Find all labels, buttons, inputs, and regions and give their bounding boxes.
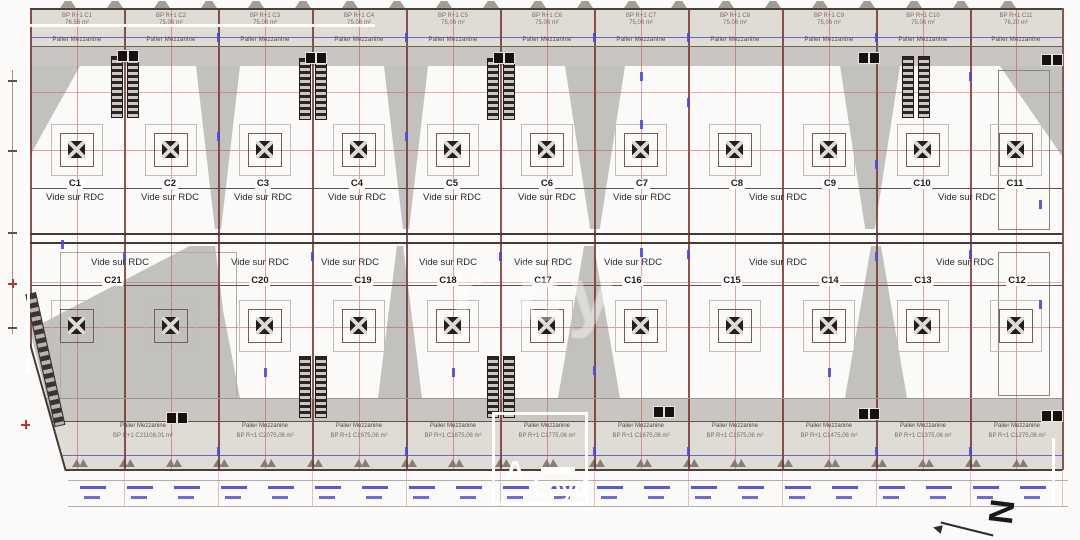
unit-id-label: C20 bbox=[249, 276, 270, 286]
stair-symbol bbox=[902, 56, 914, 118]
palier-label: Palier Mezzanine bbox=[313, 423, 405, 430]
palier-label: Palier Mezzanine bbox=[783, 37, 875, 44]
dimension-value-mark bbox=[131, 496, 147, 499]
unit-id-label: C4 bbox=[349, 179, 365, 189]
dimension-mark bbox=[969, 72, 972, 81]
grid-line-vertical bbox=[688, 8, 690, 470]
mezzanine-cell: BP R+1 C475,06 m²Palier Mezzanine bbox=[313, 13, 405, 44]
dimension-value-mark bbox=[80, 486, 106, 489]
hatch-mark bbox=[295, 1, 311, 8]
dimension-mark bbox=[61, 240, 64, 249]
dimension-mark bbox=[1039, 300, 1042, 309]
palier-label: Palier Mezzanine bbox=[407, 423, 499, 430]
dimension-value-mark bbox=[178, 496, 194, 499]
dimension-tick bbox=[8, 327, 17, 329]
north-arrow: N bbox=[988, 492, 1013, 531]
vide-sur-rdc-label: Vide sur RDC bbox=[613, 193, 671, 203]
mezzanine-cell: BP R+1 C375,06 m²Palier Mezzanine bbox=[219, 13, 311, 44]
dimension-mark bbox=[687, 447, 690, 456]
hatch-mark bbox=[436, 1, 452, 8]
grid-line-vertical bbox=[265, 8, 266, 470]
cell-area: 108,01 m² bbox=[146, 433, 173, 439]
column-pair-symbol bbox=[493, 52, 504, 64]
cell-area: 75,06 m² bbox=[501, 20, 593, 27]
mezzanine-cell: Palier MezzanineBP R+1 C21108,01 m² bbox=[97, 423, 189, 439]
column-pair-symbol bbox=[504, 52, 515, 64]
palier-label: Palier Mezzanine bbox=[689, 37, 781, 44]
dimension-value-mark bbox=[930, 496, 946, 499]
dimension-mark bbox=[687, 250, 690, 259]
grid-line-vertical bbox=[1062, 8, 1064, 470]
dimension-value-mark bbox=[738, 486, 764, 489]
dimension-value-mark bbox=[832, 486, 858, 489]
dimension-value-mark bbox=[601, 496, 617, 499]
grid-line-vertical bbox=[218, 8, 220, 470]
dimension-mark bbox=[640, 120, 643, 129]
mezzanine-cell: Palier MezzanineBP R+1 C1975,06 m² bbox=[313, 423, 405, 439]
grid-line-horizontal bbox=[30, 242, 1062, 244]
logo-watermark: A Loyd bbox=[492, 412, 588, 505]
mezzanine-cell: BP R+1 C176,56 m²Palier Mezzanine bbox=[31, 13, 123, 44]
column-symbol bbox=[350, 141, 367, 158]
dimension-value-mark bbox=[315, 486, 341, 489]
palier-label: Palier Mezzanine bbox=[97, 423, 189, 430]
hatch-mark bbox=[154, 1, 170, 8]
cell-area: 76,20 m² bbox=[970, 20, 1062, 27]
mezzanine-cell: Palier MezzanineBP R+1 C1875,06 m² bbox=[407, 423, 499, 439]
cell-area: 75,06 m² bbox=[834, 433, 858, 439]
unit-id-label: C13 bbox=[912, 276, 933, 286]
mezzanine-cell: BP R+1 C975,06 m²Palier Mezzanine bbox=[783, 13, 875, 44]
mezzanine-cell: BP R+1 C1075,06 m²Palier Mezzanine bbox=[877, 13, 969, 44]
stair-symbol bbox=[503, 356, 515, 418]
cell-ref: BP R+1 C12 bbox=[988, 433, 1021, 439]
grid-line-vertical bbox=[594, 8, 596, 470]
dimension-mark bbox=[405, 447, 408, 456]
column-symbol bbox=[1007, 317, 1024, 334]
unit-id-label: C16 bbox=[622, 276, 643, 286]
hatch-mark bbox=[342, 1, 358, 8]
grid-line-vertical bbox=[782, 8, 784, 470]
unit-id-label: C1 bbox=[67, 179, 83, 189]
dimension-tick bbox=[8, 150, 17, 152]
column-symbol bbox=[632, 141, 649, 158]
grid-line-vertical bbox=[77, 8, 78, 470]
vide-sur-rdc-label: Vide sur RDC bbox=[749, 193, 807, 203]
unit-id-label: C19 bbox=[352, 276, 373, 286]
stair-symbol bbox=[299, 58, 311, 120]
mezzanine-cell: BP R+1 C575,06 m²Palier Mezzanine bbox=[407, 13, 499, 44]
cell-area: 75,06 m² bbox=[458, 433, 482, 439]
column-symbol bbox=[162, 317, 179, 334]
unit-id-label: C15 bbox=[721, 276, 742, 286]
hatch-mark bbox=[812, 1, 828, 8]
dimension-value-mark bbox=[836, 496, 852, 499]
palier-label: Palier Mezzanine bbox=[689, 423, 781, 430]
dimension-value-mark bbox=[785, 486, 811, 489]
palier-label: Palier Mezzanine bbox=[595, 37, 687, 44]
dimension-mark bbox=[969, 447, 972, 456]
palier-label: Palier Mezzanine bbox=[783, 423, 875, 430]
dimension-tick bbox=[782, 470, 783, 506]
dimension-value-mark bbox=[742, 496, 758, 499]
vide-sur-rdc-label: Vide sur RDC bbox=[234, 193, 292, 203]
unit-id-label: C9 bbox=[822, 179, 838, 189]
dimension-mark bbox=[405, 132, 408, 141]
dimension-tick bbox=[8, 232, 17, 234]
dimension-value-mark bbox=[413, 496, 429, 499]
unit-id-label: C5 bbox=[444, 179, 460, 189]
dimension-mark bbox=[593, 366, 596, 375]
dimension-tick bbox=[8, 80, 17, 82]
column-pair-symbol bbox=[117, 50, 128, 62]
vide-sur-rdc-label: Vide sur RDC bbox=[423, 193, 481, 203]
cell-ref: BP R+1 C14 bbox=[800, 433, 833, 439]
north-label: N bbox=[979, 497, 1021, 526]
dimension-mark bbox=[311, 252, 314, 261]
grid-line-vertical bbox=[876, 8, 878, 470]
palier-label: Palier Mezzanine bbox=[31, 37, 123, 44]
mezzanine-cell: Palier MezzanineBP R+1 C1275,06 m² bbox=[971, 423, 1063, 439]
dimension-mark bbox=[593, 447, 596, 456]
column-pair-symbol bbox=[1052, 54, 1063, 66]
dimension-mark bbox=[640, 72, 643, 81]
dimension-mark bbox=[687, 98, 690, 107]
dimension-mark bbox=[217, 447, 220, 456]
hatch-mark bbox=[389, 1, 405, 8]
dimension-tick bbox=[876, 470, 877, 506]
stair-symbol bbox=[127, 56, 139, 118]
dimension-mark bbox=[1039, 200, 1042, 209]
dimension-value-mark bbox=[460, 496, 476, 499]
cell-area: 75,06 m² bbox=[783, 20, 875, 27]
hatch-mark bbox=[953, 1, 969, 8]
grid-line-vertical bbox=[312, 8, 314, 470]
palier-label: Palier Mezzanine bbox=[877, 423, 969, 430]
grid-line-vertical bbox=[735, 8, 736, 470]
palier-label: Palier Mezzanine bbox=[501, 37, 593, 44]
hatch-mark bbox=[671, 1, 687, 8]
dimension-value-mark bbox=[221, 486, 247, 489]
cell-ref: BP R+1 C20 bbox=[236, 433, 269, 439]
palier-label: Palier Mezzanine bbox=[877, 37, 969, 44]
column-symbol bbox=[256, 317, 273, 334]
grid-line-vertical bbox=[829, 8, 830, 470]
column-pair-symbol bbox=[869, 52, 880, 64]
mezzanine-cell: Palier MezzanineBP R+1 C1375,06 m² bbox=[877, 423, 969, 439]
vide-sur-rdc-label: Vide sur RDC bbox=[328, 193, 386, 203]
vide-sur-rdc-label: Vide sur RDC bbox=[321, 258, 379, 268]
palier-label: Palier Mezzanine bbox=[313, 37, 405, 44]
grid-line-horizontal bbox=[30, 233, 1062, 235]
grid-line-vertical bbox=[359, 8, 360, 470]
stair-symbol bbox=[487, 356, 499, 418]
hatch-mark bbox=[718, 1, 734, 8]
column-symbol bbox=[1007, 141, 1024, 158]
column-symbol bbox=[726, 317, 743, 334]
cell-area: 75,06 m² bbox=[928, 433, 952, 439]
column-pair-symbol bbox=[869, 408, 880, 420]
dimension-value-mark bbox=[84, 496, 100, 499]
unit-id-label: C7 bbox=[634, 179, 650, 189]
dimension-value-mark bbox=[926, 486, 952, 489]
cell-area: 75,06 m² bbox=[364, 433, 388, 439]
dimension-tick bbox=[594, 470, 595, 506]
mezzanine-cell: Palier MezzanineBP R+1 C1575,06 m² bbox=[689, 423, 781, 439]
vide-sur-rdc-label: Vide sur RDC bbox=[46, 193, 104, 203]
dimension-value-mark bbox=[883, 496, 899, 499]
column-pair-symbol bbox=[664, 406, 675, 418]
grid-line-horizontal bbox=[30, 398, 1062, 399]
dimension-value-mark bbox=[319, 496, 335, 499]
cell-area: 75,06 m² bbox=[595, 20, 687, 27]
vide-sur-rdc-label: Vide sur RDC bbox=[231, 258, 289, 268]
mezzanine-cell: Palier MezzanineBP R+1 C2075,06 m² bbox=[219, 423, 311, 439]
mezzanine-cell: BP R+1 C1176,20 m²Palier Mezzanine bbox=[970, 13, 1062, 44]
column-symbol bbox=[68, 317, 85, 334]
mezzanine-cell: Palier MezzanineBP R+1 C1675,06 m² bbox=[595, 423, 687, 439]
dimension-value-mark bbox=[789, 496, 805, 499]
column-pair-symbol bbox=[316, 52, 327, 64]
dimension-value-mark bbox=[695, 496, 711, 499]
mezzanine-cell: BP R+1 C275,06 m²Palier Mezzanine bbox=[125, 13, 217, 44]
column-symbol bbox=[632, 317, 649, 334]
grid-line-horizontal bbox=[30, 46, 1062, 47]
dimension-value-mark bbox=[691, 486, 717, 489]
dimension-value-mark bbox=[272, 496, 288, 499]
hatch-mark bbox=[60, 1, 76, 8]
cell-area: 75,06 m² bbox=[1022, 433, 1046, 439]
column-pair-symbol bbox=[858, 408, 869, 420]
hatch-mark bbox=[248, 1, 264, 8]
dimension-value-mark bbox=[362, 486, 388, 489]
grid-line-vertical bbox=[500, 8, 502, 470]
cell-ref: BP R+1 C15 bbox=[706, 433, 739, 439]
dimension-line bbox=[68, 506, 1068, 507]
dimension-mark bbox=[452, 368, 455, 377]
unit-id-label: C10 bbox=[911, 179, 932, 189]
dimension-mark bbox=[875, 252, 878, 261]
dimension-mark bbox=[875, 160, 878, 169]
column-symbol bbox=[68, 141, 85, 158]
hatch-mark bbox=[577, 1, 593, 8]
hatch-mark bbox=[906, 1, 922, 8]
crosshair-mark bbox=[12, 279, 14, 288]
dimension-tick bbox=[124, 470, 125, 506]
logo-name: Loyd bbox=[533, 475, 588, 502]
cell-area: 75,06 m² bbox=[689, 20, 781, 27]
crop-mark-horizontal bbox=[27, 24, 375, 27]
dimension-value-mark bbox=[644, 486, 670, 489]
hatch-mark bbox=[107, 1, 123, 8]
stair-symbol bbox=[918, 56, 930, 118]
unit-id-label: C11 bbox=[1005, 179, 1026, 189]
palier-label: Palier Mezzanine bbox=[595, 423, 687, 430]
middle-void-band bbox=[30, 234, 1062, 242]
hatch-mark bbox=[201, 1, 217, 8]
dimension-value-mark bbox=[127, 486, 153, 489]
palier-label: Palier Mezzanine bbox=[971, 423, 1063, 430]
hatch-mark bbox=[765, 1, 781, 8]
palier-label: Palier Mezzanine bbox=[125, 37, 217, 44]
cell-area: 75,06 m² bbox=[407, 20, 499, 27]
column-pair-symbol bbox=[1041, 410, 1052, 422]
dimension-tick bbox=[1062, 470, 1063, 506]
dimension-value-mark bbox=[1024, 496, 1040, 499]
unit-id-label: C3 bbox=[255, 179, 271, 189]
stair-symbol bbox=[503, 58, 515, 120]
dimension-value-mark bbox=[648, 496, 664, 499]
column-symbol bbox=[914, 317, 931, 334]
mezzanine-cell: BP R+1 C875,06 m²Palier Mezzanine bbox=[689, 13, 781, 44]
dimension-tick bbox=[688, 470, 689, 506]
dimension-mark bbox=[875, 447, 878, 456]
stair-symbol bbox=[315, 58, 327, 120]
grid-line-vertical bbox=[406, 8, 408, 470]
unit-id-label: C21 bbox=[102, 276, 123, 286]
column-symbol bbox=[820, 317, 837, 334]
palier-label: Palier Mezzanine bbox=[219, 423, 311, 430]
hatch-mark bbox=[1000, 1, 1016, 8]
mezzanine-cell: BP R+1 C675,06 m²Palier Mezzanine bbox=[501, 13, 593, 44]
dimension-value-mark bbox=[366, 496, 382, 499]
logo-bar bbox=[541, 467, 575, 473]
palier-label: Palier Mezzanine bbox=[407, 37, 499, 44]
dimension-value-mark bbox=[456, 486, 482, 489]
grid-line-vertical bbox=[1016, 8, 1017, 470]
column-pair-symbol bbox=[653, 406, 664, 418]
hatch-mark bbox=[530, 1, 546, 8]
dimension-value-mark bbox=[409, 486, 435, 489]
grid-line-vertical bbox=[124, 8, 126, 470]
grid-line-horizontal bbox=[30, 8, 1062, 10]
cell-area: 75,06 m² bbox=[646, 433, 670, 439]
column-symbol bbox=[726, 141, 743, 158]
dimension-mark bbox=[828, 368, 831, 377]
hatch-mark bbox=[624, 1, 640, 8]
cell-area: 75,06 m² bbox=[877, 20, 969, 27]
crop-mark-vertical bbox=[1052, 438, 1055, 505]
hatch-mark bbox=[859, 1, 875, 8]
stair-symbol bbox=[299, 356, 311, 418]
grid-line-vertical bbox=[171, 8, 172, 470]
column-symbol bbox=[162, 141, 179, 158]
unit-id-label: C14 bbox=[819, 276, 840, 286]
column-pair-symbol bbox=[858, 52, 869, 64]
column-symbol bbox=[538, 141, 555, 158]
dimension-mark bbox=[217, 132, 220, 141]
column-pair-symbol bbox=[128, 50, 139, 62]
palier-label: Palier Mezzanine bbox=[219, 37, 311, 44]
unit-id-label: C6 bbox=[539, 179, 555, 189]
floorplan-screenshot: BP R+1 C176,56 m²Palier Mezzanine BP R+1… bbox=[0, 0, 1080, 540]
cell-ref: BP R+1 C19 bbox=[330, 433, 363, 439]
cell-ref: BP R+1 C21 bbox=[113, 433, 146, 439]
column-symbol bbox=[256, 141, 273, 158]
dimension-value-mark bbox=[973, 486, 999, 489]
vide-sur-rdc-label: Vide sur RDC bbox=[938, 193, 996, 203]
stair-symbol bbox=[487, 58, 499, 120]
logo-letter: A bbox=[505, 455, 525, 487]
column-symbol bbox=[444, 141, 461, 158]
cell-ref: BP R+1 C13 bbox=[894, 433, 927, 439]
cell-ref: BP R+1 C18 bbox=[424, 433, 457, 439]
palier-label: Palier Mezzanine bbox=[970, 37, 1062, 44]
dimension-mark bbox=[640, 248, 643, 257]
dimension-value-mark bbox=[268, 486, 294, 489]
cell-ref: BP R+1 C16 bbox=[612, 433, 645, 439]
column-pair-symbol bbox=[1041, 54, 1052, 66]
hatch-mark bbox=[483, 1, 499, 8]
dimension-tick bbox=[970, 470, 971, 506]
vide-sur-rdc-label: Vide sur RDC bbox=[91, 258, 149, 268]
dimension-value-mark bbox=[174, 486, 200, 489]
crop-mark-vertical bbox=[27, 24, 30, 373]
dimension-value-mark bbox=[1020, 486, 1046, 489]
dimension-mark bbox=[264, 368, 267, 377]
column-symbol bbox=[914, 141, 931, 158]
vide-sur-rdc-label: Vide sur RDC bbox=[749, 258, 807, 268]
crosshair-mark bbox=[25, 420, 27, 429]
dimension-value-mark bbox=[879, 486, 905, 489]
column-pair-symbol bbox=[305, 52, 316, 64]
column-symbol bbox=[820, 141, 837, 158]
vide-sur-rdc-label: Vide sur RDC bbox=[936, 258, 994, 268]
column-symbol bbox=[350, 317, 367, 334]
mezzanine-cell: Palier MezzanineBP R+1 C1475,06 m² bbox=[783, 423, 875, 439]
grid-line-vertical bbox=[547, 8, 548, 470]
cell-area: 75,06 m² bbox=[740, 433, 764, 439]
watermark-center: r by bbox=[450, 244, 622, 344]
unit-id-label: C8 bbox=[729, 179, 745, 189]
vide-sur-rdc-label: Vide sur RDC bbox=[518, 193, 576, 203]
column-pair-symbol bbox=[1052, 410, 1063, 422]
dimension-value-mark bbox=[597, 486, 623, 489]
dimension-tick bbox=[406, 470, 407, 506]
grid-line-vertical bbox=[453, 8, 454, 470]
dimension-tick bbox=[218, 470, 219, 506]
cell-area: 75,06 m² bbox=[270, 433, 294, 439]
unit-id-label: C2 bbox=[162, 179, 178, 189]
unit-id-label: C12 bbox=[1006, 276, 1027, 286]
mezzanine-cell: BP R+1 C775,06 m²Palier Mezzanine bbox=[595, 13, 687, 44]
dimension-tick bbox=[312, 470, 313, 506]
stair-symbol bbox=[315, 356, 327, 418]
dimension-value-mark bbox=[225, 496, 241, 499]
vide-sur-rdc-label: Vide sur RDC bbox=[141, 193, 199, 203]
stair-symbol bbox=[111, 56, 123, 118]
